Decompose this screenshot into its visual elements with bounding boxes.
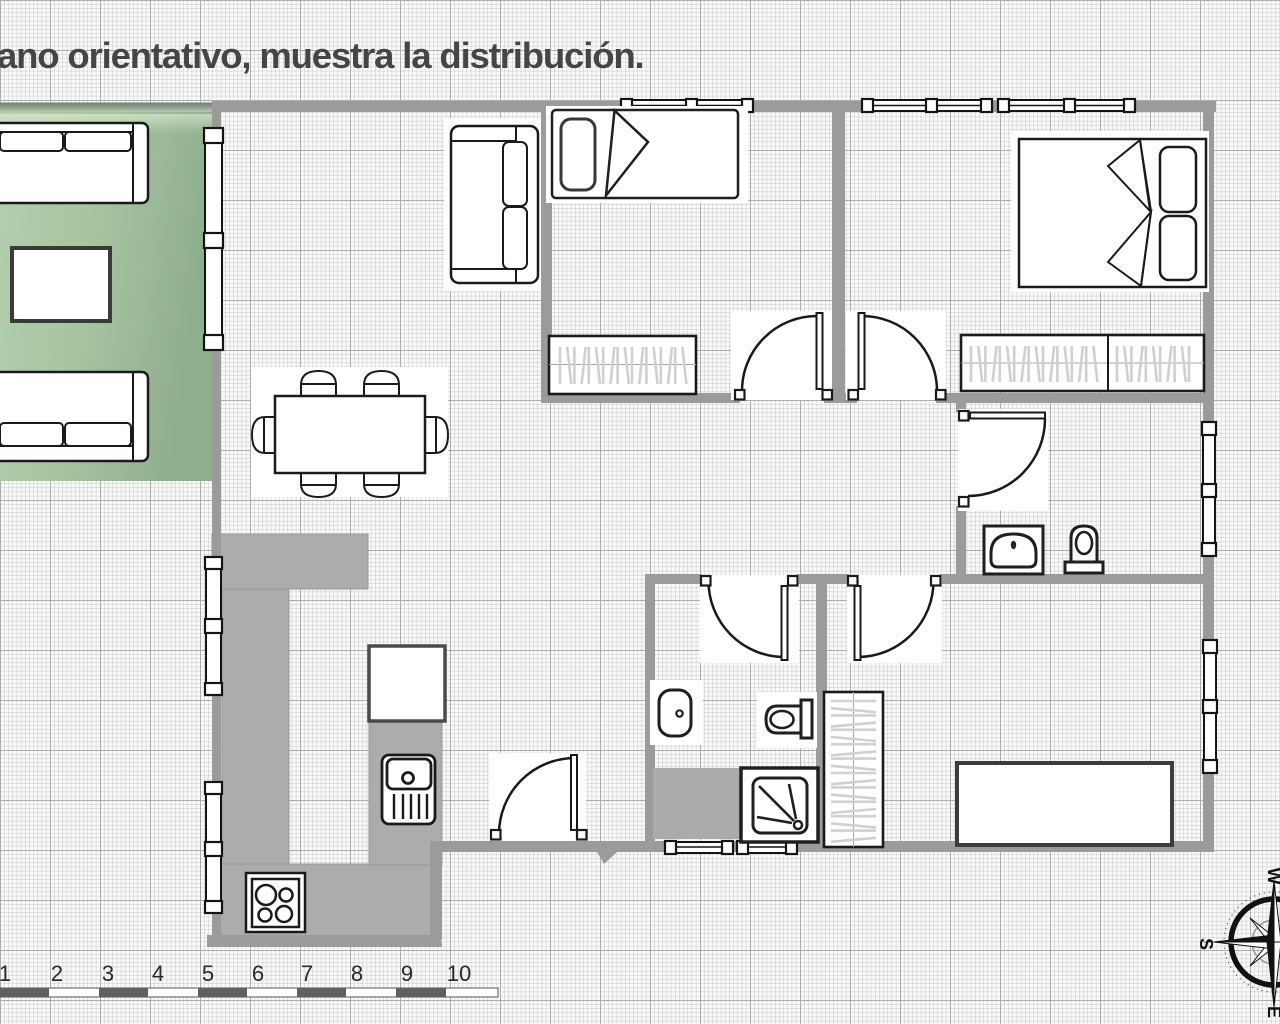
svg-text:1: 1 bbox=[0, 961, 11, 986]
svg-text:10: 10 bbox=[447, 961, 471, 986]
svg-text:S: S bbox=[1196, 938, 1216, 950]
svg-text:9: 9 bbox=[401, 961, 413, 986]
svg-text:5: 5 bbox=[202, 961, 214, 986]
svg-text:ano orientativo, muestra la di: ano orientativo, muestra la distribución… bbox=[0, 35, 643, 76]
svg-text:8: 8 bbox=[351, 961, 363, 986]
svg-text:3: 3 bbox=[102, 961, 114, 986]
svg-text:4: 4 bbox=[152, 961, 164, 986]
svg-text:6: 6 bbox=[252, 961, 264, 986]
svg-text:E: E bbox=[1264, 1006, 1280, 1018]
svg-text:2: 2 bbox=[51, 961, 63, 986]
svg-text:7: 7 bbox=[301, 961, 313, 986]
svg-text:W: W bbox=[1264, 868, 1280, 885]
